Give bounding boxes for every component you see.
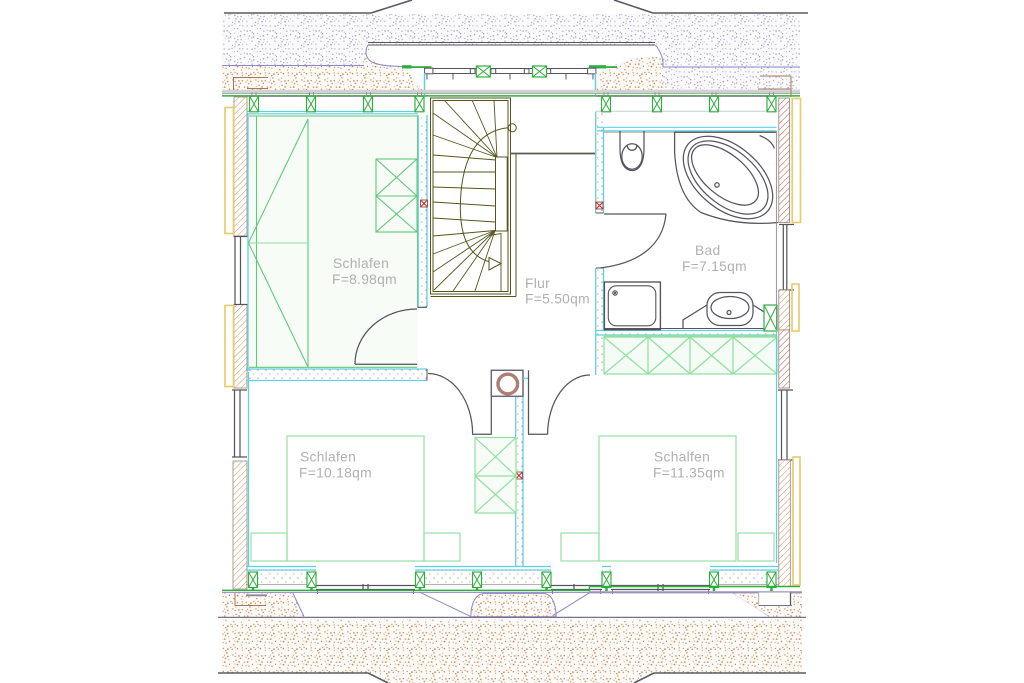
svg-text:F=11.35qm: F=11.35qm <box>653 466 725 481</box>
svg-text:F=5.50qm: F=5.50qm <box>525 292 590 307</box>
svg-text:Flur: Flur <box>525 276 550 291</box>
svg-text:F=7.15qm: F=7.15qm <box>682 259 747 274</box>
svg-text:Bad: Bad <box>695 243 720 258</box>
svg-text:F=8.98qm: F=8.98qm <box>332 272 397 287</box>
svg-text:Schalfen: Schalfen <box>654 450 710 465</box>
svg-text:Schlafen: Schlafen <box>333 256 389 271</box>
svg-text:Schlafen: Schlafen <box>300 450 356 465</box>
svg-text:F=10.18qm: F=10.18qm <box>299 466 372 481</box>
